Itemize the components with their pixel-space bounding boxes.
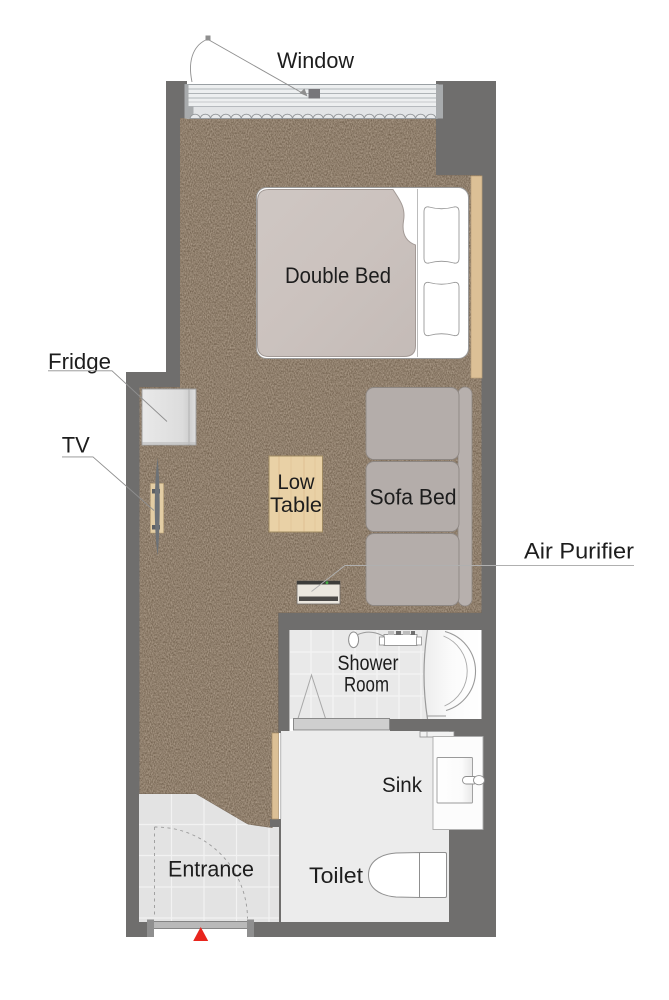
svg-text:TV: TV <box>62 433 90 458</box>
svg-text:Window: Window <box>277 48 354 73</box>
svg-text:Air Purifier: Air Purifier <box>524 539 634 564</box>
svg-text:Toilet: Toilet <box>309 863 363 888</box>
svg-text:Sofa Bed: Sofa Bed <box>370 485 457 510</box>
svg-text:Fridge: Fridge <box>48 349 111 374</box>
svg-text:Entrance: Entrance <box>168 857 254 882</box>
svg-text:Sink: Sink <box>382 773 422 797</box>
svg-text:Shower: Shower <box>338 652 399 675</box>
svg-text:Low: Low <box>278 471 316 494</box>
svg-text:Room: Room <box>344 674 389 697</box>
svg-text:Table: Table <box>270 494 322 517</box>
svg-text:Double Bed: Double Bed <box>285 263 391 288</box>
